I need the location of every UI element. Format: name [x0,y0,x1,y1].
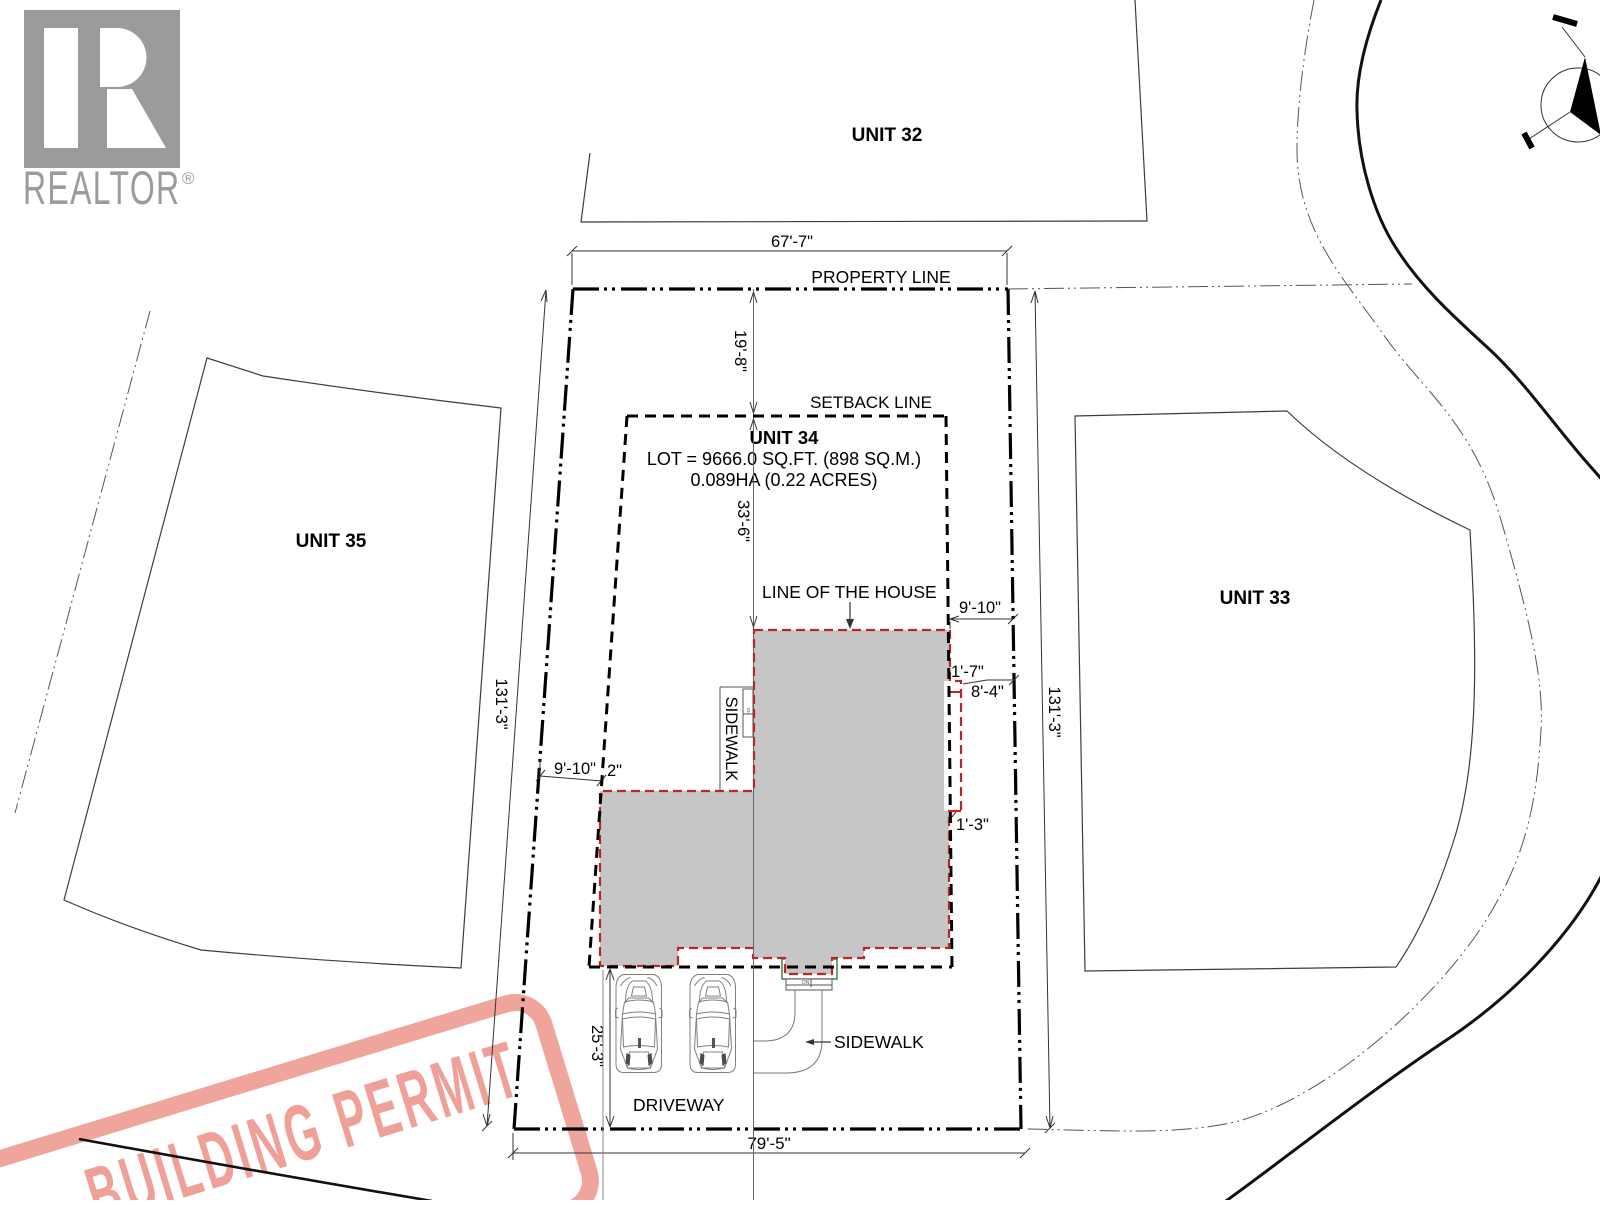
svg-text:8'-4": 8'-4" [971,683,1004,701]
svg-text:67'-7": 67'-7" [771,233,813,251]
svg-text:®: ® [182,169,195,188]
svg-text:33'-6": 33'-6" [734,500,752,542]
svg-text:LINE OF THE HOUSE: LINE OF THE HOUSE [762,582,937,602]
svg-text:SIDEWALK: SIDEWALK [722,697,740,782]
svg-text:DN: DN [802,980,810,986]
svg-text:9'-10": 9'-10" [554,760,596,778]
svg-text:UNIT 33: UNIT 33 [1220,588,1291,609]
svg-text:0.089HA (0.22 ACRES): 0.089HA (0.22 ACRES) [690,470,877,490]
svg-text:UNIT 35: UNIT 35 [296,531,367,552]
svg-text:DRIVEWAY: DRIVEWAY [633,1095,725,1115]
svg-text:131'-3": 131'-3" [1045,686,1063,737]
svg-text:SETBACK LINE: SETBACK LINE [810,393,932,412]
svg-text:1'-7": 1'-7" [951,663,984,681]
svg-text:REALTOR: REALTOR [23,162,180,215]
svg-text:UNIT 34: UNIT 34 [750,427,820,448]
svg-text:DN: DN [746,708,751,715]
svg-text:1'-3": 1'-3" [956,816,989,834]
svg-text:SIDEWALK: SIDEWALK [834,1032,924,1052]
svg-text:LOT = 9666.0 SQ.FT. (898 SQ.M.: LOT = 9666.0 SQ.FT. (898 SQ.M.) [647,449,921,469]
svg-text:PROPERTY LINE: PROPERTY LINE [811,267,950,287]
svg-text:UNIT 32: UNIT 32 [852,125,923,146]
svg-text:131'-3": 131'-3" [492,678,510,729]
svg-text:9'-10": 9'-10" [959,599,1001,617]
svg-text:19'-8": 19'-8" [731,330,749,372]
svg-text:2": 2" [607,762,622,780]
